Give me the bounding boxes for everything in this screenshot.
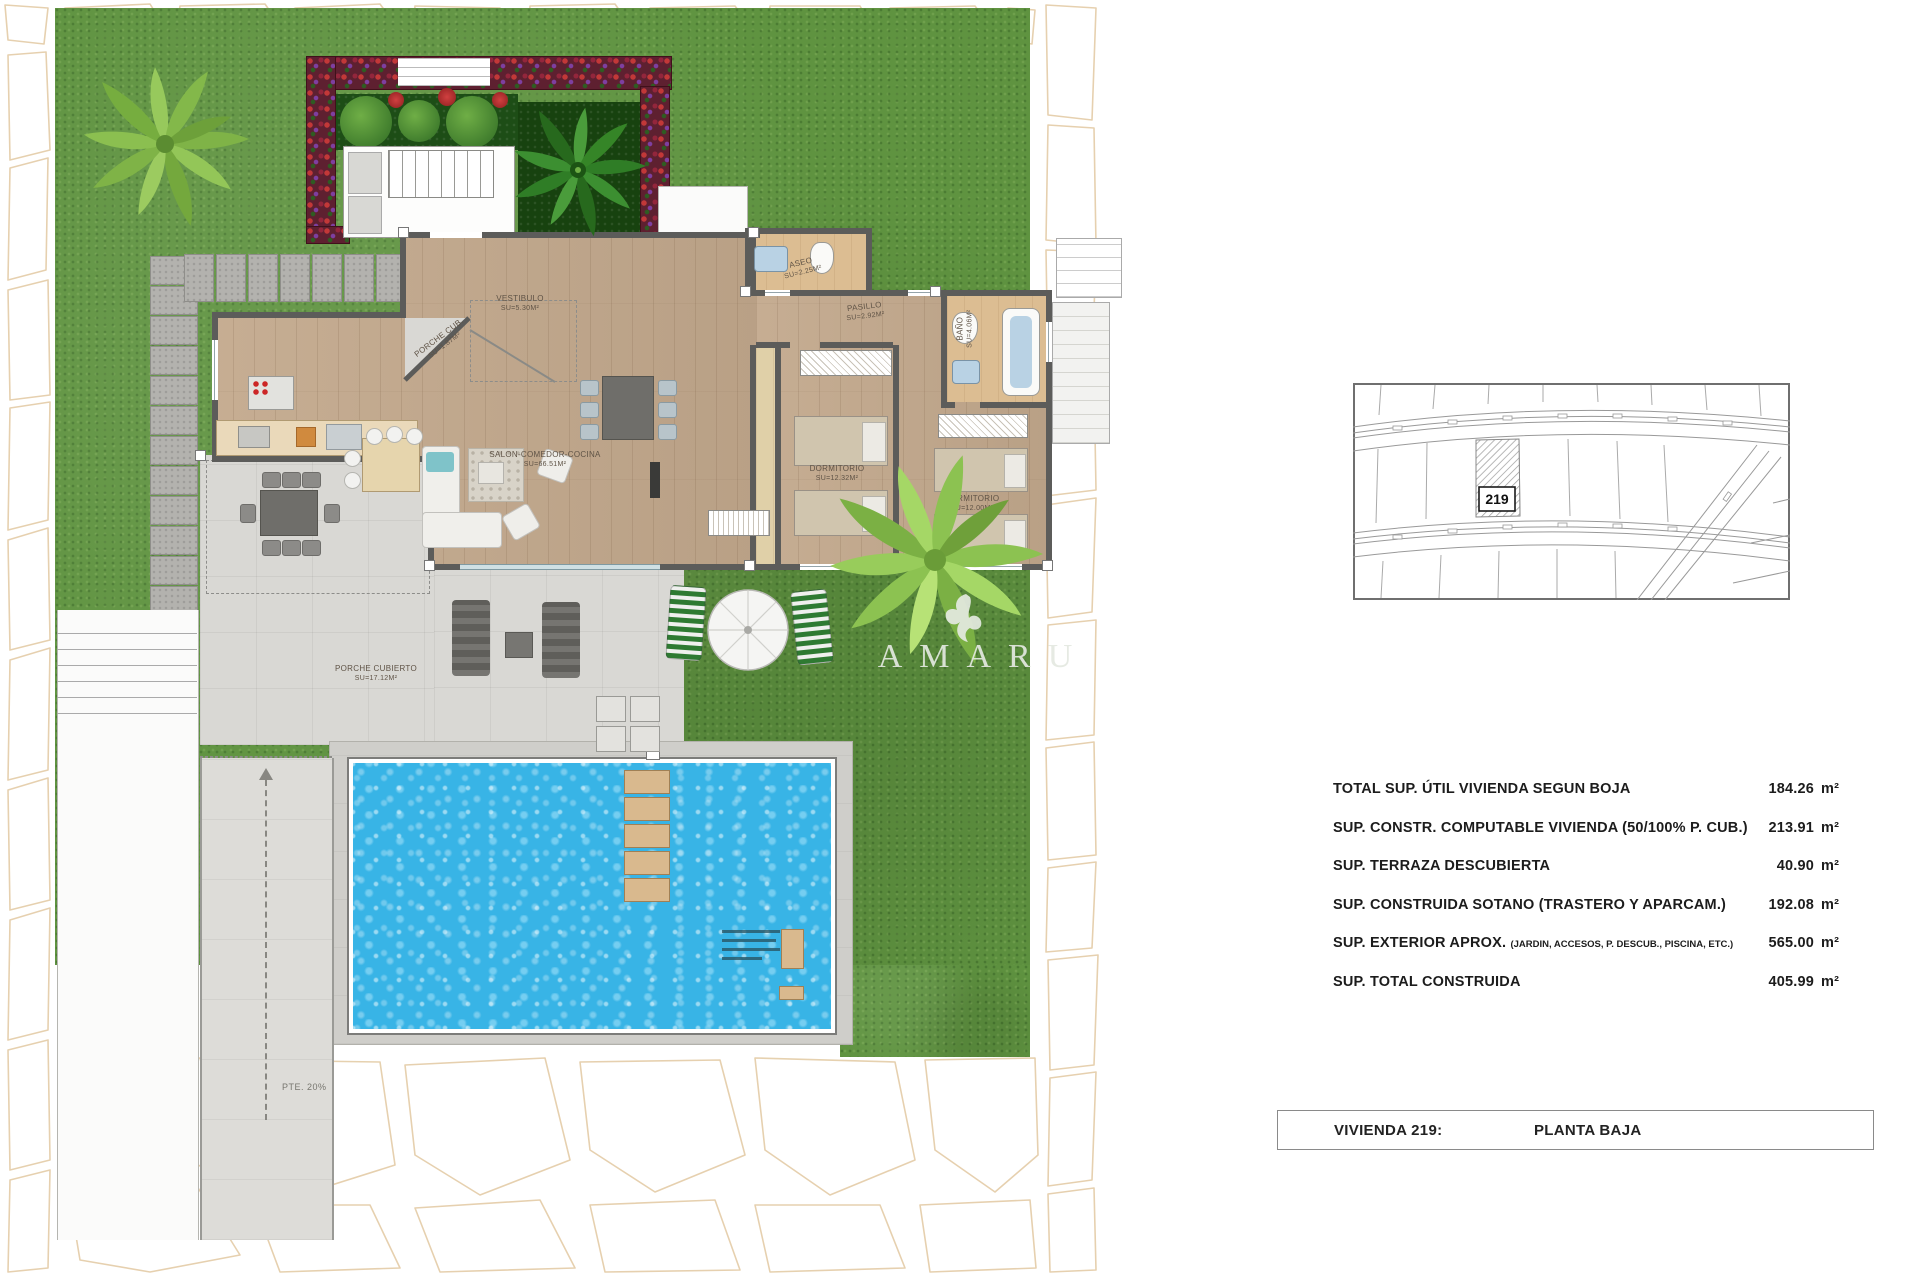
exterior-stairs bbox=[388, 150, 494, 198]
wall bbox=[212, 312, 218, 340]
room-label-vestibulo: VESTIBULOSu=5.30m² bbox=[460, 294, 580, 313]
parasol bbox=[704, 586, 792, 674]
sofa bbox=[422, 512, 502, 548]
dresser bbox=[708, 510, 770, 536]
wall bbox=[400, 232, 406, 318]
row-value: 40.90 bbox=[1756, 858, 1814, 874]
row-unit: m² bbox=[1814, 935, 1853, 951]
pool-annotation bbox=[722, 930, 780, 933]
step-block bbox=[630, 696, 660, 722]
entrance-steps bbox=[398, 58, 490, 86]
entrance-door-gap bbox=[430, 232, 482, 238]
pool-step bbox=[624, 797, 670, 821]
flower-cluster bbox=[492, 92, 508, 108]
row-value: 213.91 bbox=[1756, 820, 1814, 836]
row-value: 405.99 bbox=[1756, 974, 1814, 990]
amaru-logo-icon bbox=[938, 592, 986, 644]
table-row: TOTAL SUP. ÚTIL VIVIENDA SEGUN BOJA 184.… bbox=[1333, 781, 1853, 797]
kitchen-sink bbox=[238, 426, 270, 448]
table-row: SUP. TERRAZA DESCUBIERTA 40.90 m² bbox=[1333, 858, 1853, 874]
pool-ladder bbox=[781, 929, 804, 969]
wall bbox=[866, 228, 872, 296]
column-marker bbox=[195, 450, 206, 461]
pasillo-window bbox=[765, 290, 790, 296]
cushion bbox=[426, 452, 454, 472]
column-marker bbox=[744, 560, 755, 571]
palm-tree-courtyard bbox=[508, 100, 648, 240]
pasillo-window bbox=[908, 290, 930, 296]
table-row: SUP. EXTERIOR APROX. (JARDIN, ACCESOS, P… bbox=[1333, 935, 1853, 951]
side-table bbox=[505, 632, 533, 658]
table-row: SUP. TOTAL CONSTRUIDA 405.99 m² bbox=[1333, 974, 1853, 990]
row-value: 192.08 bbox=[1756, 897, 1814, 913]
wardrobe bbox=[938, 414, 1028, 438]
row-unit: m² bbox=[1814, 897, 1853, 913]
wall bbox=[941, 402, 955, 408]
bush bbox=[398, 100, 440, 142]
areas-table: TOTAL SUP. ÚTIL VIVIENDA SEGUN BOJA 184.… bbox=[1333, 781, 1853, 1012]
appliance bbox=[326, 424, 362, 450]
lawn-lower-right bbox=[840, 965, 1030, 1057]
amaru-logo-text: AMARU bbox=[850, 638, 1100, 676]
ramp-slope-label: PTE. 20% bbox=[282, 1082, 327, 1092]
exterior-stairs-ne bbox=[1056, 238, 1122, 298]
pool-annotation bbox=[722, 948, 780, 951]
breakfast-table bbox=[362, 438, 420, 492]
wall bbox=[756, 342, 790, 348]
row-label: SUP. CONSTR. COMPUTABLE VIVIENDA (50/100… bbox=[1333, 820, 1756, 836]
pool-step bbox=[624, 770, 670, 794]
palm-tree-topleft bbox=[70, 62, 260, 227]
room-label-porche-cubierto: PORCHE CUBIERTOSu=17.12m² bbox=[316, 664, 436, 683]
pool-step bbox=[624, 824, 670, 848]
chair bbox=[302, 540, 321, 556]
column-marker bbox=[424, 560, 435, 571]
ramp-threshold bbox=[200, 756, 332, 758]
row-unit: m² bbox=[1814, 858, 1853, 874]
pool-step bbox=[624, 878, 670, 902]
plan-sheet: PTE. 20% bbox=[0, 0, 1920, 1280]
chair bbox=[282, 472, 301, 488]
chair bbox=[324, 504, 340, 523]
cooktop bbox=[252, 380, 270, 396]
fireplace bbox=[650, 462, 660, 498]
table-row: SUP. CONSTR. COMPUTABLE VIVIENDA (50/100… bbox=[1333, 820, 1853, 836]
step-block bbox=[596, 726, 626, 752]
chair bbox=[240, 504, 256, 523]
flower-cluster bbox=[438, 88, 456, 106]
column-marker bbox=[740, 286, 751, 297]
wall bbox=[750, 345, 756, 570]
sun-lounger bbox=[452, 600, 490, 676]
chair bbox=[658, 380, 677, 396]
planter bbox=[348, 196, 382, 234]
step-block bbox=[630, 726, 660, 752]
parcel-number: 219 bbox=[1485, 491, 1509, 507]
chair bbox=[386, 426, 403, 443]
wall bbox=[820, 342, 893, 348]
chair bbox=[658, 402, 677, 418]
pool-step bbox=[624, 851, 670, 875]
room-label-salon: SALON-COMEDOR-COCINASu=66.51m² bbox=[455, 450, 635, 469]
row-unit: m² bbox=[1814, 781, 1853, 797]
sun-lounger bbox=[542, 602, 580, 678]
row-unit: m² bbox=[1814, 974, 1853, 990]
wardrobe bbox=[800, 350, 892, 376]
garden-lounger bbox=[665, 585, 706, 661]
wall bbox=[775, 345, 781, 570]
row-unit: m² bbox=[1814, 820, 1853, 836]
chair bbox=[262, 540, 281, 556]
cutting-board bbox=[296, 427, 316, 447]
chair bbox=[366, 428, 383, 445]
row-label: SUP. TERRAZA DESCUBIERTA bbox=[1333, 858, 1756, 874]
column-marker bbox=[398, 227, 409, 238]
chair bbox=[406, 428, 423, 445]
chair bbox=[658, 424, 677, 440]
row-value: 565.00 bbox=[1756, 935, 1814, 951]
row-label: TOTAL SUP. ÚTIL VIVIENDA SEGUN BOJA bbox=[1333, 781, 1756, 797]
pool-annotation bbox=[722, 957, 762, 960]
table-row: SUP. CONSTRUIDA SOTANO (TRASTERO Y APARC… bbox=[1333, 897, 1853, 913]
title-planta: PLANTA BAJA bbox=[1534, 1122, 1641, 1139]
planter bbox=[348, 152, 382, 194]
garden-steps bbox=[57, 618, 197, 714]
pool bbox=[347, 757, 837, 1035]
row-label: SUP. TOTAL CONSTRUIDA bbox=[1333, 974, 1756, 990]
chair bbox=[580, 402, 599, 418]
pool-ladder bbox=[779, 986, 804, 1000]
step-block bbox=[596, 696, 626, 722]
wall bbox=[212, 312, 405, 318]
chair bbox=[344, 472, 361, 489]
dining-table bbox=[602, 376, 654, 440]
wall bbox=[941, 296, 947, 408]
chair bbox=[580, 424, 599, 440]
chair bbox=[282, 540, 301, 556]
kitchen-window bbox=[212, 340, 218, 400]
ramp-arrow-line bbox=[265, 780, 267, 1120]
bush bbox=[340, 96, 392, 148]
side-terrace-ne bbox=[1052, 302, 1110, 444]
wall bbox=[745, 228, 872, 234]
title-bar: VIVIENDA 219: PLANTA BAJA bbox=[1277, 1110, 1874, 1150]
wall bbox=[790, 290, 908, 296]
pool-annotation bbox=[722, 939, 776, 942]
flower-cluster bbox=[388, 92, 404, 108]
row-value: 184.26 bbox=[1756, 781, 1814, 797]
driveway-ramp bbox=[200, 758, 334, 1240]
column-marker bbox=[748, 227, 759, 238]
ramp-arrowhead bbox=[259, 768, 273, 780]
bush bbox=[446, 96, 498, 148]
chair bbox=[262, 472, 281, 488]
site-plan: 219 bbox=[1353, 383, 1790, 600]
bathtub-water bbox=[1010, 316, 1032, 388]
column-marker bbox=[930, 286, 941, 297]
outdoor-table bbox=[260, 490, 318, 536]
chair bbox=[580, 380, 599, 396]
wall bbox=[930, 290, 1052, 296]
chair bbox=[344, 450, 361, 467]
chair bbox=[302, 472, 321, 488]
sliding-glass-door bbox=[460, 564, 660, 570]
title-vivienda: VIVIENDA 219: bbox=[1334, 1122, 1494, 1139]
row-label: SUP. CONSTRUIDA SOTANO (TRASTERO Y APARC… bbox=[1333, 897, 1756, 913]
row-label: SUP. EXTERIOR APROX. (JARDIN, ACCESOS, P… bbox=[1333, 935, 1756, 951]
side-patio bbox=[658, 186, 748, 236]
wall bbox=[980, 402, 1052, 408]
room-label-bano: BAÑOSu=4.06m² bbox=[955, 284, 974, 374]
